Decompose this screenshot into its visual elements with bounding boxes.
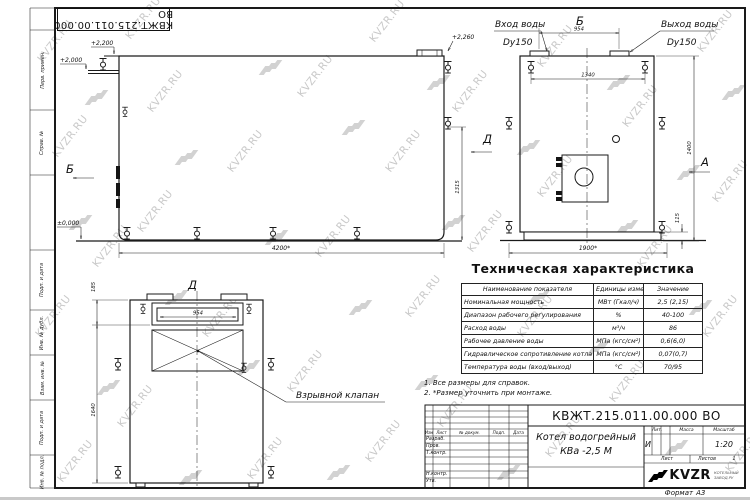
outlet-callout: Выход воды — [661, 20, 718, 30]
dim-height: 1640 — [91, 403, 97, 417]
sheet-label: Лист — [644, 455, 690, 463]
row-razrab: Разраб. — [426, 436, 449, 443]
outlet-dn: Dy150 — [667, 38, 697, 48]
valve-icon — [194, 228, 201, 240]
dim-height: 1315 — [455, 180, 461, 194]
inlet-callout: Вход воды — [495, 20, 545, 30]
kvzr-hatch-icon — [651, 470, 666, 482]
dim-width: 1900* — [579, 245, 597, 252]
dim-flanges: 954 — [574, 27, 584, 33]
valve-icon — [506, 118, 513, 130]
row-prov: Пров. — [426, 443, 449, 450]
margin-box: Справ. № — [30, 110, 55, 175]
valve-icon — [528, 62, 535, 74]
valve-icon — [115, 359, 122, 371]
scale-header: Масштаб — [703, 426, 745, 434]
burner-plate — [562, 155, 608, 202]
mass-header: Масса — [670, 426, 703, 434]
view-label-d: Д — [482, 132, 492, 146]
valve-icon — [445, 118, 452, 130]
boiler-casing-top — [130, 300, 263, 483]
header-izm: Изм — [425, 429, 433, 436]
front-view: +2,200 +2,000 ±0,000 +2,260 Б 4200* 1315 — [57, 34, 474, 258]
valve-icon — [445, 62, 452, 74]
valve-icon — [642, 62, 649, 74]
dim-height: 1400 — [687, 141, 693, 155]
dim-length: 4200* — [272, 245, 290, 252]
header-list: Лист — [433, 429, 450, 436]
sheets-value: 1 — [725, 455, 743, 463]
elevation-flange: +2,260 — [452, 34, 474, 41]
d-view: 954 Д 185 1640 Взрывной клапан — [91, 278, 385, 489]
table-row: Рабочее давление водыМПа (кгс/см²)0,6(6,… — [462, 335, 703, 348]
boiler-casing-front — [119, 56, 444, 240]
inlet-dn: Dy150 — [503, 38, 533, 48]
valve-icon — [354, 228, 361, 240]
spec-header-row: Наименование показателя Единицы измерени… — [462, 284, 703, 296]
table-row: Номинальная мощностьМВт (Гкал/ч)2,5 (2,1… — [462, 296, 703, 309]
valve-icon — [659, 118, 666, 130]
elevation-top: +2,200 — [91, 40, 113, 47]
dim-window: 954 — [193, 311, 203, 317]
header-data: Дата — [509, 429, 528, 436]
header-docum: № докум. — [450, 429, 489, 436]
dim-pipes: 1340 — [581, 73, 595, 79]
note-1: 1. Все размеры для справок. — [424, 378, 552, 388]
valve-icon — [506, 222, 513, 234]
sensor-boss — [613, 136, 620, 143]
valve-icon — [246, 304, 252, 313]
view-label-d: Д — [187, 278, 197, 292]
elevation-zero: ±0,000 — [57, 220, 79, 227]
margin-box: Подп. и дата — [30, 250, 55, 310]
valve-icon — [140, 304, 146, 313]
section-label-b: Б — [66, 162, 74, 176]
view-label-a: А — [700, 155, 709, 169]
stamp-name-line2: КВа -2,5 М — [528, 444, 644, 458]
margin-box: Инв. № дубл. — [30, 310, 55, 355]
lit-value: И — [644, 434, 652, 455]
valve-icon — [124, 228, 131, 240]
stamp-designation-flipped: КВЖТ.215.011.00.000 ВО — [57, 8, 170, 31]
valve-icon — [100, 59, 107, 71]
valve-icon — [270, 228, 277, 240]
stamp-designation: КВЖТ.215.011.00.000 ВО — [528, 405, 745, 426]
margin-box: Инв. № подл. — [30, 455, 55, 488]
row-tkontr: Т.контр. — [426, 450, 449, 457]
table-row: Диапазон рабочего регулирования%40-100 — [462, 309, 703, 322]
valve-icon — [115, 467, 122, 479]
row-utv: Утв. — [426, 478, 449, 485]
dim-base: 115 — [675, 212, 681, 223]
notes: 1. Все размеры для справок. 2. *Размер у… — [424, 378, 552, 398]
logo-subtext: КОТЕЛЬНЫЙ ЗАВОД.РУ — [714, 471, 739, 480]
spec-table: Наименование показателя Единицы измерени… — [461, 283, 703, 374]
spec-table-title: Техническая характеристика — [458, 261, 708, 276]
table-row: Гидравлическое сопротивление котлаМПа (к… — [462, 348, 703, 361]
elevation-pipe: +2,000 — [60, 57, 82, 64]
margin-box: Подп. и дата — [30, 400, 55, 455]
margin-box: Взам. инв. № — [30, 355, 55, 400]
note-2: 2. *Размер уточнить при монтаже. — [424, 388, 552, 398]
dim-top: 185 — [91, 281, 97, 292]
table-row: Температура воды (вход/выход)°С70/95 — [462, 361, 703, 374]
valve-icon — [122, 107, 128, 116]
explosion-valve-callout: Взрывной клапан — [296, 391, 379, 401]
valve-icon — [268, 467, 275, 479]
valve-icon — [268, 359, 275, 371]
sheets-label: Листов — [692, 455, 722, 463]
company-logo: KVZR КОТЕЛЬНЫЙ ЗАВОД.РУ — [646, 464, 744, 487]
valve-icon — [659, 222, 666, 234]
margin-box: Перв. примен. — [30, 30, 55, 110]
stamp-name-line1: Котел водогрейный — [528, 430, 644, 444]
header-podp: Подп. — [489, 429, 509, 436]
scale-value: 1:20 — [703, 434, 745, 455]
table-row: Расход водым³/ч86 — [462, 322, 703, 335]
lit-header: Лит. — [644, 426, 670, 434]
side-view: Вход воды Dy150 Б Выход воды Dy150 Д А 9… — [471, 14, 718, 258]
logo-text: KVZR — [669, 468, 711, 483]
row-nkontr: Н.контр. — [426, 471, 449, 478]
